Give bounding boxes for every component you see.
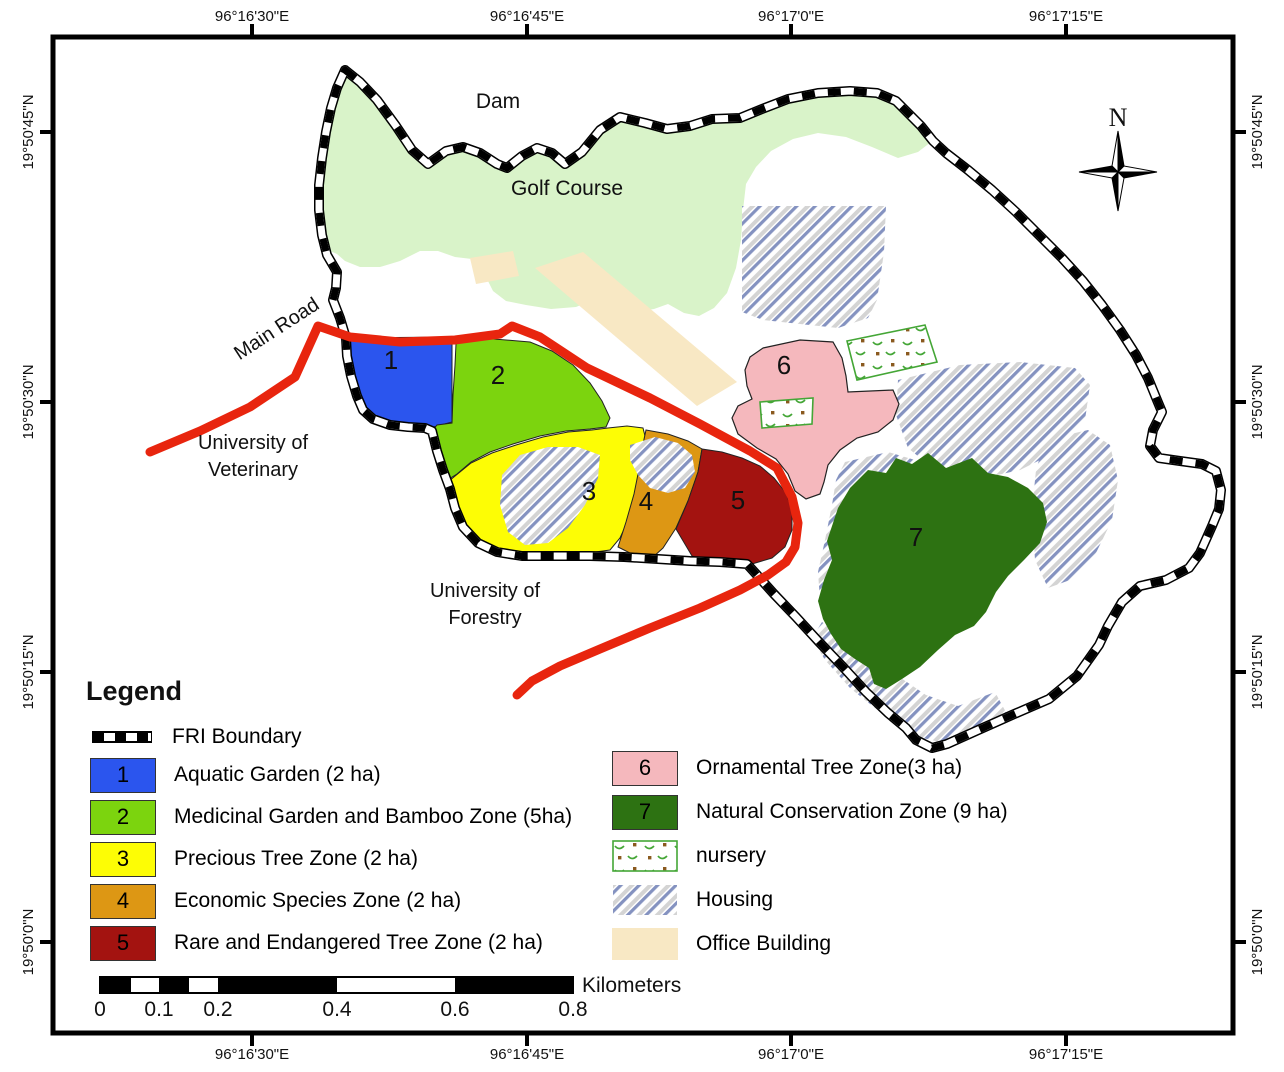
zone-5-swatch-number: 5 — [117, 930, 129, 956]
legend-item-nursery: nursery — [612, 834, 1008, 878]
scale-bar — [100, 977, 573, 993]
dam-label: Dam — [448, 90, 548, 114]
legend-item-zone-7: 7 Natural Conservation Zone (9 ha) — [612, 790, 1008, 834]
axis-label-right-2: 19°50'30"N — [1249, 357, 1265, 447]
legend-label-zone-6: Ornamental Tree Zone(3 ha) — [696, 756, 962, 780]
legend-label-zone-2: Medicinal Garden and Bamboo Zone (5ha) — [174, 805, 572, 829]
north-arrow-icon — [1079, 131, 1157, 211]
north-label: N — [1098, 103, 1138, 133]
axis-label-top-4: 96°17'15"E — [1006, 8, 1126, 25]
zone-7-swatch: 7 — [612, 795, 678, 830]
nursery-area-large — [847, 325, 937, 380]
legend-item-fri-boundary: FRI Boundary — [90, 720, 572, 754]
zone-4-swatch-number: 4 — [117, 888, 129, 914]
legend-item-office-building: Office Building — [612, 922, 1008, 966]
axis-label-bottom-1: 96°16'30"E — [192, 1046, 312, 1063]
legend-item-zone-1: 1 Aquatic Garden (2 ha) — [90, 754, 572, 796]
university-veterinary-label: University of Veterinary — [153, 430, 353, 484]
axis-label-left-4: 19°50'0"N — [20, 897, 36, 987]
axis-label-bottom-3: 96°17'0"E — [731, 1046, 851, 1063]
housing-swatch-icon — [612, 884, 678, 916]
zone-3-swatch: 3 — [90, 842, 156, 877]
axis-label-left-3: 19°50'15"N — [20, 627, 36, 717]
legend-label-zone-1: Aquatic Garden (2 ha) — [174, 763, 381, 787]
zone-4-swatch: 4 — [90, 884, 156, 919]
legend-item-zone-2: 2 Medicinal Garden and Bamboo Zone (5ha) — [90, 796, 572, 838]
legend-item-zone-5: 5 Rare and Endangered Tree Zone (2 ha) — [90, 922, 572, 964]
legend-item-zone-4: 4 Economic Species Zone (2 ha) — [90, 880, 572, 922]
legend-item-zone-3: 3 Precious Tree Zone (2 ha) — [90, 838, 572, 880]
fri-boundary-swatch-icon — [90, 730, 154, 744]
scale-tick-0-2: 0.2 — [188, 998, 248, 1022]
zone-6-number: 6 — [764, 350, 804, 381]
legend-label-nursery: nursery — [696, 844, 766, 868]
university-forestry-line1: University of — [385, 578, 585, 605]
housing-area-right-east — [1032, 430, 1118, 588]
legend-item-housing: Housing — [612, 878, 1008, 922]
university-veterinary-line1: University of — [153, 430, 353, 457]
axis-label-bottom-2: 96°16'45"E — [467, 1046, 587, 1063]
zone-2-number: 2 — [478, 360, 518, 391]
scale-tick-0-1: 0.1 — [129, 998, 189, 1022]
legend-label-fri-boundary: FRI Boundary — [172, 725, 302, 749]
axis-label-right-4: 19°50'0"N — [1249, 897, 1265, 987]
scale-tick-0-8: 0.8 — [543, 998, 603, 1022]
zone-5-swatch: 5 — [90, 926, 156, 961]
zone-3-swatch-number: 3 — [117, 846, 129, 872]
legend-item-zone-6: 6 Ornamental Tree Zone(3 ha) — [612, 746, 1008, 790]
golf-course-label: Golf Course — [467, 177, 667, 201]
zone-1-swatch-number: 1 — [117, 762, 129, 788]
axis-label-top-3: 96°17'0"E — [731, 8, 851, 25]
axis-label-top-1: 96°16'30"E — [192, 8, 312, 25]
zone-4-number: 4 — [626, 486, 666, 517]
legend-column-left: FRI Boundary 1 Aquatic Garden (2 ha) 2 M… — [90, 720, 572, 964]
legend-label-office-building: Office Building — [696, 932, 831, 956]
zone-7-number: 7 — [896, 522, 936, 553]
nursery-area-small — [760, 398, 813, 428]
axis-label-bottom-4: 96°17'15"E — [1006, 1046, 1126, 1063]
scale-tick-0: 0 — [70, 998, 130, 1022]
office-building-swatch — [612, 928, 678, 960]
fri-zone-map: 96°16'30"E 96°16'45"E 96°17'0"E 96°17'15… — [0, 0, 1284, 1072]
axis-label-right-1: 19°50'45"N — [1249, 87, 1265, 177]
axis-label-left-2: 19°50'30"N — [20, 357, 36, 447]
legend-label-zone-4: Economic Species Zone (2 ha) — [174, 889, 461, 913]
university-forestry-line2: Forestry — [385, 605, 585, 632]
zone-1-swatch: 1 — [90, 758, 156, 793]
axis-label-right-3: 19°50'15"N — [1249, 627, 1265, 717]
zone-3-number: 3 — [569, 476, 609, 507]
nursery-swatch-icon — [612, 840, 678, 872]
zone-6-swatch: 6 — [612, 751, 678, 786]
legend-label-zone-7: Natural Conservation Zone (9 ha) — [696, 800, 1008, 824]
zone-2-swatch: 2 — [90, 800, 156, 835]
zone-7-swatch-number: 7 — [639, 799, 651, 825]
housing-area-top — [742, 206, 886, 328]
scale-tick-0-6: 0.6 — [425, 998, 485, 1022]
zone-1-number: 1 — [371, 345, 411, 376]
axis-label-top-2: 96°16'45"E — [467, 8, 587, 25]
zone-6-swatch-number: 6 — [639, 755, 651, 781]
legend-label-zone-3: Precious Tree Zone (2 ha) — [174, 847, 418, 871]
zone-7-natural-conservation — [818, 453, 1047, 689]
legend-label-housing: Housing — [696, 888, 773, 912]
zone-2-swatch-number: 2 — [117, 804, 129, 830]
scale-tick-0-4: 0.4 — [307, 998, 367, 1022]
legend-title: Legend — [86, 676, 182, 707]
zone-5-number: 5 — [718, 485, 758, 516]
university-forestry-label: University of Forestry — [385, 578, 585, 632]
university-veterinary-line2: Veterinary — [153, 457, 353, 484]
scale-unit-label: Kilometers — [582, 974, 681, 998]
legend-label-zone-5: Rare and Endangered Tree Zone (2 ha) — [174, 931, 543, 955]
legend-column-right: 6 Ornamental Tree Zone(3 ha) 7 Natural C… — [612, 746, 1008, 966]
axis-label-left-1: 19°50'45"N — [20, 87, 36, 177]
